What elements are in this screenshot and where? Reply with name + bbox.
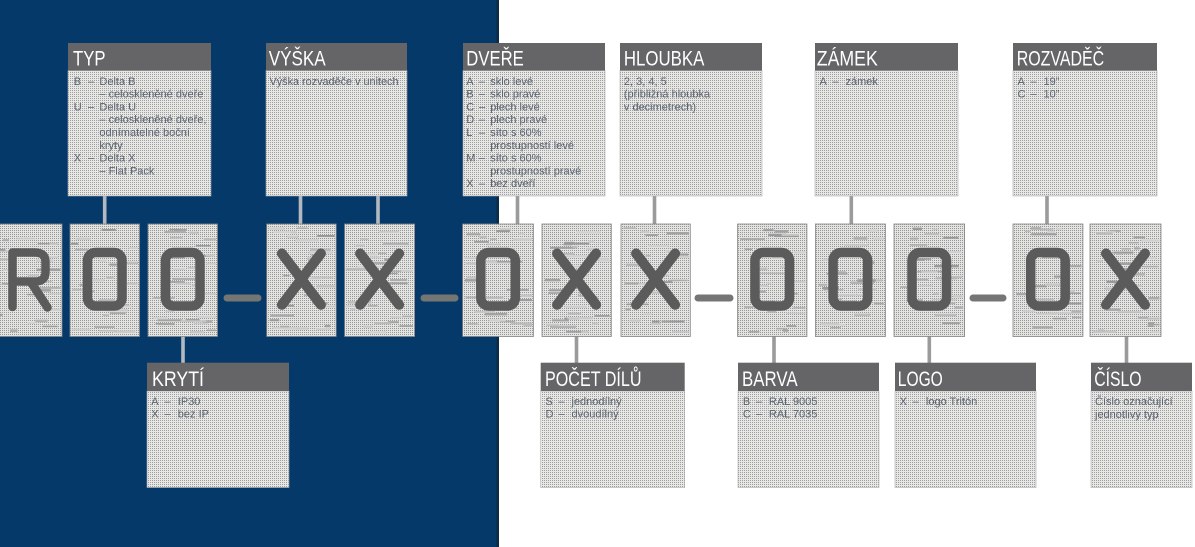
svg-text:zámek: zámek: [846, 76, 879, 88]
svg-text:ROZVADĚČ: ROZVADĚČ: [1017, 47, 1104, 70]
svg-text:– celoskleněné dveře,: – celoskleněné dveře,: [99, 114, 206, 126]
svg-text:U: U: [74, 101, 82, 113]
svg-text:B: B: [743, 396, 750, 408]
svg-text:–: –: [479, 89, 486, 101]
svg-text:KRYTÍ: KRYTÍ: [152, 368, 204, 391]
svg-text:–: –: [833, 76, 840, 88]
svg-text:C: C: [1018, 89, 1026, 101]
svg-text:A: A: [151, 396, 159, 408]
svg-text:–: –: [756, 409, 763, 421]
svg-text:–: –: [559, 396, 566, 408]
svg-text:Číslo označující: Číslo označující: [1095, 395, 1173, 408]
svg-text:TYP: TYP: [73, 47, 106, 70]
svg-text:ČÍSLO: ČÍSLO: [1094, 368, 1141, 391]
svg-text:–: –: [88, 153, 95, 165]
svg-text:–: –: [88, 101, 95, 113]
svg-text:RAL 9005: RAL 9005: [769, 396, 818, 408]
svg-text:–: –: [479, 76, 486, 88]
svg-text:Delta X: Delta X: [99, 153, 136, 165]
svg-text:IP30: IP30: [178, 396, 201, 408]
svg-text:bez IP: bez IP: [178, 409, 209, 421]
svg-text:S: S: [546, 396, 553, 408]
svg-text:prostupností levé: prostupností levé: [490, 140, 574, 152]
svg-text:jednodílný: jednodílný: [571, 396, 623, 408]
svg-text:síto s 60%: síto s 60%: [490, 153, 542, 165]
svg-text:–: –: [479, 127, 486, 139]
svg-text:–: –: [165, 409, 172, 421]
svg-text:X: X: [74, 153, 82, 165]
svg-text:–: –: [1031, 89, 1038, 101]
svg-text:D: D: [546, 409, 554, 421]
svg-text:kryty: kryty: [99, 140, 123, 152]
svg-text:C: C: [466, 101, 474, 113]
svg-text:–: –: [913, 396, 920, 408]
svg-text:bez dveří: bez dveří: [490, 178, 535, 190]
svg-text:sklo pravé: sklo pravé: [490, 89, 540, 101]
svg-text:–: –: [165, 396, 172, 408]
svg-text:2, 3, 4, 5: 2, 3, 4, 5: [624, 76, 667, 88]
svg-text:dvoudílný: dvoudílný: [572, 409, 620, 421]
svg-text:–: –: [479, 114, 486, 126]
svg-text:10”: 10”: [1044, 89, 1060, 101]
svg-text:síto s 60%: síto s 60%: [490, 127, 542, 139]
svg-text:logo Tritón: logo Tritón: [926, 396, 977, 408]
svg-text:RAL 7035: RAL 7035: [769, 409, 818, 421]
svg-text:Delta U: Delta U: [99, 101, 136, 113]
svg-text:jednotlivý typ: jednotlivý typ: [1094, 409, 1159, 421]
svg-text:BARVA: BARVA: [742, 368, 798, 391]
svg-text:POČET DÍLŮ: POČET DÍLŮ: [545, 367, 642, 391]
svg-text:X: X: [900, 396, 908, 408]
svg-text:DVEŘE: DVEŘE: [466, 47, 524, 70]
svg-text:– celoskleněné dveře: – celoskleněné dveře: [99, 89, 203, 101]
svg-text:B: B: [466, 89, 473, 101]
svg-text:prostupností pravé: prostupností pravé: [490, 165, 581, 177]
svg-text:Výška rozvaděče v unitech: Výška rozvaděče v unitech: [270, 76, 399, 88]
svg-text:X: X: [466, 178, 474, 190]
svg-text:HLOUBKA: HLOUBKA: [624, 47, 705, 70]
svg-text:v decimetrech): v decimetrech): [624, 101, 696, 113]
svg-text:–: –: [1031, 76, 1038, 88]
svg-text:ZÁMEK: ZÁMEK: [817, 47, 878, 70]
svg-text:Delta B: Delta B: [99, 76, 135, 88]
svg-text:L: L: [466, 127, 472, 139]
svg-text:X: X: [151, 409, 159, 421]
svg-text:(přibližná hloubka: (přibližná hloubka: [624, 89, 711, 101]
svg-text:–: –: [559, 409, 566, 421]
svg-text:A: A: [820, 76, 828, 88]
svg-text:–: –: [756, 396, 763, 408]
svg-text:M: M: [466, 153, 475, 165]
svg-text:– Flat Pack: – Flat Pack: [99, 165, 155, 177]
svg-text:sklo levé: sklo levé: [490, 76, 533, 88]
svg-text:–: –: [479, 153, 486, 165]
svg-text:VÝŠKA: VÝŠKA: [269, 47, 326, 70]
svg-text:–: –: [479, 178, 486, 190]
svg-text:–: –: [88, 76, 95, 88]
svg-text:19”: 19”: [1044, 76, 1060, 88]
svg-text:D: D: [466, 114, 474, 126]
svg-text:B: B: [74, 76, 81, 88]
svg-text:–: –: [479, 101, 486, 113]
svg-text:A: A: [466, 76, 474, 88]
svg-text:C: C: [743, 409, 751, 421]
svg-text:odnímatelné boční: odnímatelné boční: [99, 127, 190, 139]
svg-text:LOGO: LOGO: [898, 368, 943, 391]
svg-text:plech pravé: plech pravé: [490, 114, 547, 126]
svg-text:plech levé: plech levé: [490, 101, 540, 113]
svg-text:A: A: [1018, 76, 1026, 88]
